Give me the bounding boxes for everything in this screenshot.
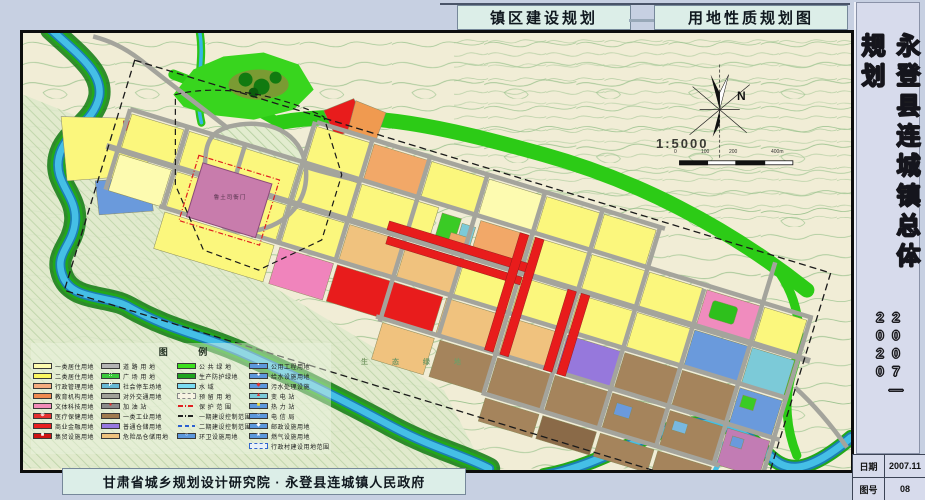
legend-item-label: 电 信 局 <box>271 412 295 421</box>
legend-swatch-glyph: ◆ <box>256 423 260 429</box>
legend-swatch-glyph: ● <box>109 403 112 409</box>
legend-item-label: 污水处理设施 <box>271 382 310 391</box>
legend-swatch-glyph: ○ <box>185 433 188 439</box>
legend-item: 行政管理用地 <box>33 381 101 391</box>
title-block-panel: 永登县连城镇总体规划 2007—2020 <box>856 2 920 454</box>
legend-item: ○电 信 局 <box>249 411 329 421</box>
legend-item: 保 护 范 围 <box>177 401 249 411</box>
legend-item-label: 一类工业用地 <box>123 412 162 421</box>
legend-swatch-glyph: P <box>109 383 113 389</box>
legend-item-label: 给水设施用地 <box>271 372 310 381</box>
legend-swatch: ▪ <box>249 363 268 370</box>
legend-title: 图 例 <box>51 345 329 358</box>
legend-column: 一类居住用地二类居住用地行政管理用地教育机构用地文体科技用地⊕医疗保健用地商业金… <box>33 361 101 441</box>
page: 镇区建设规划 用地性质规划图 <box>0 0 925 500</box>
legend-item-label: 公 共 绿 地 <box>199 362 232 371</box>
header-right-box: 用地性质规划图 <box>654 5 848 30</box>
legend-item: ●给水设施用地 <box>249 371 329 381</box>
legend-item: ▲变 电 站 <box>249 391 329 401</box>
legend-item: ○环卫设施用地 <box>177 431 249 441</box>
legend-item-label: 加 油 站 <box>123 402 147 411</box>
scale-tick: 0 <box>674 149 677 155</box>
scale-tick: 200 <box>729 149 737 155</box>
legend-item-label: 危险品仓储用地 <box>123 432 169 441</box>
legend-swatch <box>177 393 196 400</box>
legend-item-label: 保 护 范 围 <box>199 402 232 411</box>
title-block-table: 日期2007.11图号08 <box>852 454 925 500</box>
legend-swatch <box>101 413 120 420</box>
scale-tick: 400m <box>771 149 784 155</box>
legend-item: ★燃气设施用地 <box>249 431 329 441</box>
legend-item-label: 商业金融用地 <box>55 422 94 431</box>
legend-item-label: 医疗保健用地 <box>55 412 94 421</box>
legend-item-label: 生产防护绿地 <box>199 372 238 381</box>
title-block-row-label: 日期 <box>853 455 885 477</box>
legend-swatch-glyph: ● <box>257 373 260 379</box>
legend-swatch-glyph: ■ <box>41 433 44 439</box>
legend-item: 道 路 用 地 <box>101 361 177 371</box>
legend-item-label: 道 路 用 地 <box>123 362 156 371</box>
legend-item: 教育机构用地 <box>33 391 101 401</box>
header-right-title: 用地性质规划图 <box>688 7 814 28</box>
legend-item: 对外交通用地 <box>101 391 177 401</box>
legend-item-label: 普通仓储用地 <box>123 422 162 431</box>
legend-item: 二期建设控制范围 <box>177 421 249 431</box>
legend-swatch: ○ <box>249 413 268 420</box>
legend-columns: 一类居住用地二类居住用地行政管理用地教育机构用地文体科技用地⊕医疗保健用地商业金… <box>33 361 329 451</box>
legend-item-label: 热 力 站 <box>271 402 295 411</box>
legend-item: ●加 油 站 <box>101 401 177 411</box>
legend-swatch: ◆ <box>249 423 268 430</box>
map-frame: 图 例 一类居住用地二类居住用地行政管理用地教育机构用地文体科技用地⊕医疗保健用… <box>20 30 854 473</box>
legend-item: 公 共 绿 地 <box>177 361 249 371</box>
legend-swatch-glyph: ○ <box>257 413 260 419</box>
legend-swatch <box>101 433 120 440</box>
title-block-row-value: 08 <box>885 478 925 500</box>
legend-swatch <box>33 363 52 370</box>
header-connector <box>629 19 654 22</box>
legend-item: 普通仓储用地 <box>101 421 177 431</box>
legend-swatch: ● <box>249 373 268 380</box>
legend-item: 一类工业用地 <box>101 411 177 421</box>
legend-swatch: ⊕ <box>33 413 52 420</box>
legend-item-label: 预 留 用 地 <box>199 392 232 401</box>
legend-swatch-glyph: ★ <box>256 433 261 439</box>
legend-item: P社会停车场地 <box>101 381 177 391</box>
legend-swatch: ★ <box>249 433 268 440</box>
legend-item: 行政村建设用地范围 <box>249 441 329 451</box>
plan-years-vertical: 2007—2020 <box>872 309 904 453</box>
legend-swatch: ● <box>101 403 120 410</box>
legend-item: ◆污水处理设施 <box>249 381 329 391</box>
legend-swatch: ○ <box>177 433 196 440</box>
legend-item: ::广 场 用 地 <box>101 371 177 381</box>
legend-swatch <box>101 393 120 400</box>
legend-item-label: 教育机构用地 <box>55 392 94 401</box>
north-label: N <box>737 89 746 103</box>
legend-item: 商业金融用地 <box>33 421 101 431</box>
legend-swatch <box>177 363 196 370</box>
legend-item: 水 域 <box>177 381 249 391</box>
legend-item-label: 行政村建设用地范围 <box>271 442 330 451</box>
legend: 图 例 一类居住用地二类居住用地行政管理用地教育机构用地文体科技用地⊕医疗保健用… <box>31 343 331 454</box>
legend-swatch: ■ <box>249 403 268 410</box>
legend-column: 道 路 用 地::广 场 用 地P社会停车场地对外交通用地●加 油 站一类工业用… <box>101 361 177 441</box>
legend-swatch: P <box>101 383 120 390</box>
header-left-box: 镇区建设规划 <box>457 5 631 30</box>
legend-swatch: ◆ <box>249 383 268 390</box>
legend-swatch-glyph: :: <box>109 373 113 379</box>
title-block-row-value: 2007.11 <box>885 455 925 477</box>
legend-column: ▪公用工程用地●给水设施用地◆污水处理设施▲变 电 站■热 力 站○电 信 局◆… <box>249 361 329 451</box>
legend-item: ▪公用工程用地 <box>249 361 329 371</box>
legend-item-label: 邮政设施用地 <box>271 422 310 431</box>
legend-item-label: 环卫设施用地 <box>199 432 238 441</box>
legend-swatch <box>177 373 196 380</box>
footer-credit-box: 甘肃省城乡规划设计研究院 · 永登县连城镇人民政府 <box>62 468 466 495</box>
legend-item-label: 一期建设控制范围 <box>199 412 251 421</box>
title-block-row: 日期2007.11 <box>853 455 925 478</box>
legend-column: 公 共 绿 地生产防护绿地水 域预 留 用 地保 护 范 围一期建设控制范围二期… <box>177 361 249 441</box>
legend-item: ⊕医疗保健用地 <box>33 411 101 421</box>
legend-swatch <box>33 393 52 400</box>
legend-swatch <box>101 423 120 430</box>
eco-green-label: 生 态 绿 地 <box>361 357 472 367</box>
legend-swatch <box>33 383 52 390</box>
scale-tick: 100 <box>701 149 709 155</box>
legend-item: 生产防护绿地 <box>177 371 249 381</box>
legend-item-label: 变 电 站 <box>271 392 295 401</box>
legend-item: 二类居住用地 <box>33 371 101 381</box>
legend-item-label: 文体科技用地 <box>55 402 94 411</box>
legend-swatch <box>249 443 268 450</box>
legend-item: 一类居住用地 <box>33 361 101 371</box>
legend-item-label: 广 场 用 地 <box>123 372 156 381</box>
header-left-title: 镇区建设规划 <box>490 7 598 28</box>
legend-swatch <box>33 403 52 410</box>
legend-item: ◆邮政设施用地 <box>249 421 329 431</box>
legend-item-label: 对外交通用地 <box>123 392 162 401</box>
legend-swatch-glyph: ◆ <box>256 383 260 389</box>
legend-item-label: 行政管理用地 <box>55 382 94 391</box>
legend-item: ■集贸设施用地 <box>33 431 101 441</box>
legend-swatch: :: <box>101 373 120 380</box>
legend-item-label: 水 域 <box>199 382 214 391</box>
legend-item-label: 燃气设施用地 <box>271 432 310 441</box>
legend-item-label: 二类居住用地 <box>55 372 94 381</box>
legend-swatch: ▲ <box>249 393 268 400</box>
legend-swatch: ■ <box>33 433 52 440</box>
legend-swatch <box>177 403 196 410</box>
legend-item: 一期建设控制范围 <box>177 411 249 421</box>
legend-swatch <box>177 383 196 390</box>
legend-item-label: 二期建设控制范围 <box>199 422 251 431</box>
legend-swatch-glyph: ▲ <box>256 393 261 399</box>
legend-swatch <box>33 373 52 380</box>
legend-swatch <box>177 413 196 420</box>
legend-item: 文体科技用地 <box>33 401 101 411</box>
plan-title-vertical: 永登县连城镇总体规划 <box>853 33 923 299</box>
legend-swatch <box>177 423 196 430</box>
legend-item-label: 集贸设施用地 <box>55 432 94 441</box>
legend-swatch-glyph: ⊕ <box>40 413 45 419</box>
legend-swatch <box>101 363 120 370</box>
title-block-row: 图号08 <box>853 478 925 500</box>
legend-swatch-glyph: ▪ <box>258 363 260 369</box>
legend-item-label: 社会停车场地 <box>123 382 162 391</box>
legend-swatch <box>33 423 52 430</box>
legend-item: ■热 力 站 <box>249 401 329 411</box>
legend-item: 危险品仓储用地 <box>101 431 177 441</box>
legend-item: 预 留 用 地 <box>177 391 249 401</box>
footer-credit: 甘肃省城乡规划设计研究院 · 永登县连城镇人民政府 <box>103 472 426 491</box>
legend-swatch-glyph: ■ <box>257 403 260 409</box>
landmark-label: 鲁土司衙门 <box>199 193 261 201</box>
legend-item-label: 一类居住用地 <box>55 362 94 371</box>
scale-bar <box>680 161 793 165</box>
title-block-row-label: 图号 <box>853 478 885 500</box>
legend-item-label: 公用工程用地 <box>271 362 310 371</box>
